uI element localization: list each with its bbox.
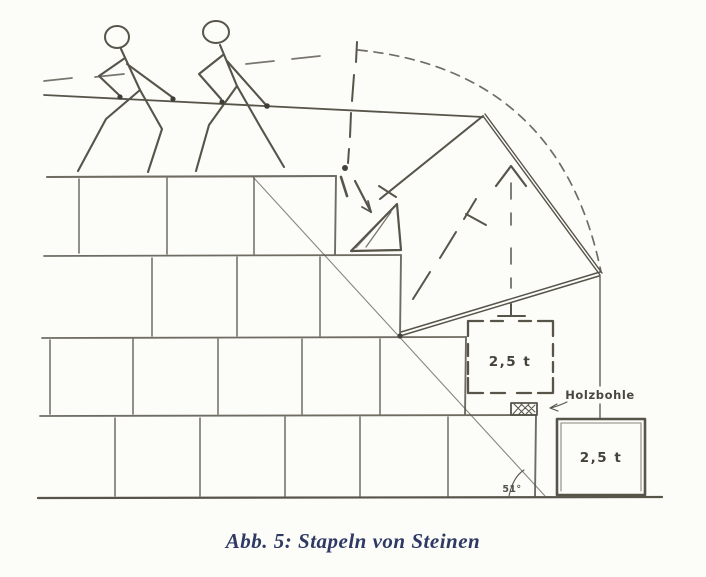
wall-step-edge xyxy=(465,337,466,415)
dash-segment xyxy=(350,113,351,137)
figure-head xyxy=(203,21,229,43)
wall-row-line xyxy=(42,337,466,338)
hand-grip xyxy=(170,96,175,101)
dash-segment xyxy=(356,42,357,62)
figure-arm xyxy=(227,61,266,105)
figure-torso xyxy=(121,49,140,90)
block-edge xyxy=(485,114,602,273)
dashed-corner xyxy=(538,378,553,393)
wood-plank xyxy=(511,403,537,415)
wall-row-line xyxy=(44,255,401,256)
figure-arm xyxy=(199,55,223,99)
hand-grip xyxy=(117,94,122,99)
wall-top-platform xyxy=(47,176,336,177)
rocker-strut xyxy=(356,207,394,248)
tilted-block-edges xyxy=(380,114,602,339)
plank-label: Holzbohle xyxy=(565,388,635,402)
lever-line xyxy=(401,272,600,332)
dash-segment xyxy=(352,75,354,101)
dashed-corner xyxy=(468,321,483,336)
angle-label: 51° xyxy=(502,484,521,495)
lever-line xyxy=(400,276,599,336)
figure-head xyxy=(105,26,129,48)
dash-segment xyxy=(348,149,349,163)
rotation-arc xyxy=(358,50,601,272)
worker-figure-2 xyxy=(196,21,284,171)
ground-line xyxy=(38,497,662,498)
motion-dash xyxy=(44,78,72,81)
ground-block-weight-label: 2,5 t xyxy=(580,450,623,466)
raised-block-weight-label: 2,5 t xyxy=(489,354,532,370)
trajectory-arc xyxy=(358,50,601,272)
block-edge xyxy=(483,116,600,275)
plank-hatching xyxy=(513,404,535,414)
ground-block: 2,5 t xyxy=(557,419,645,495)
block-edge xyxy=(380,116,483,199)
hand-grip xyxy=(264,103,270,109)
figure-arm xyxy=(127,64,172,97)
wall-step-edge xyxy=(335,176,336,255)
short-stroke xyxy=(341,177,347,196)
scanned-figure-page: 2,5 t Holzbohle 2,5 t 51° A xyxy=(0,0,706,577)
pivot-point xyxy=(397,333,402,338)
stone-wall xyxy=(40,176,536,497)
angle-marker: 51° xyxy=(502,470,524,496)
radius-dash xyxy=(440,232,456,258)
rocker-triangle xyxy=(341,165,401,251)
dashed-corner xyxy=(538,321,553,336)
motion-dashes xyxy=(44,56,320,81)
rocker-strut xyxy=(366,212,391,247)
motion-dash xyxy=(292,56,320,59)
hand-grip xyxy=(219,99,224,104)
stone-stacking-diagram: 2,5 t Holzbohle 2,5 t 51° xyxy=(0,0,706,577)
wall-step-edge xyxy=(400,255,401,336)
pull-rope xyxy=(44,94,483,117)
figure-leg xyxy=(78,90,140,171)
figure-caption: Abb. 5: Stapeln von Steinen xyxy=(0,529,706,554)
figure-leg xyxy=(140,90,162,172)
motion-dash xyxy=(246,61,274,64)
ground-stroke xyxy=(38,497,662,498)
rocker-outline xyxy=(351,204,401,251)
plank-callout: Holzbohle xyxy=(550,388,635,411)
dashed-corner xyxy=(468,378,483,393)
figure-torso xyxy=(220,45,237,86)
figure-leg xyxy=(196,86,237,171)
raised-block-outline: 2,5 t xyxy=(468,321,553,393)
radius-dash xyxy=(413,272,430,299)
wall-row-line xyxy=(40,415,536,416)
radius-dash xyxy=(466,214,486,225)
rope-knot xyxy=(342,165,348,171)
vertical-dashed-line xyxy=(348,42,357,163)
rope-line xyxy=(44,95,483,117)
